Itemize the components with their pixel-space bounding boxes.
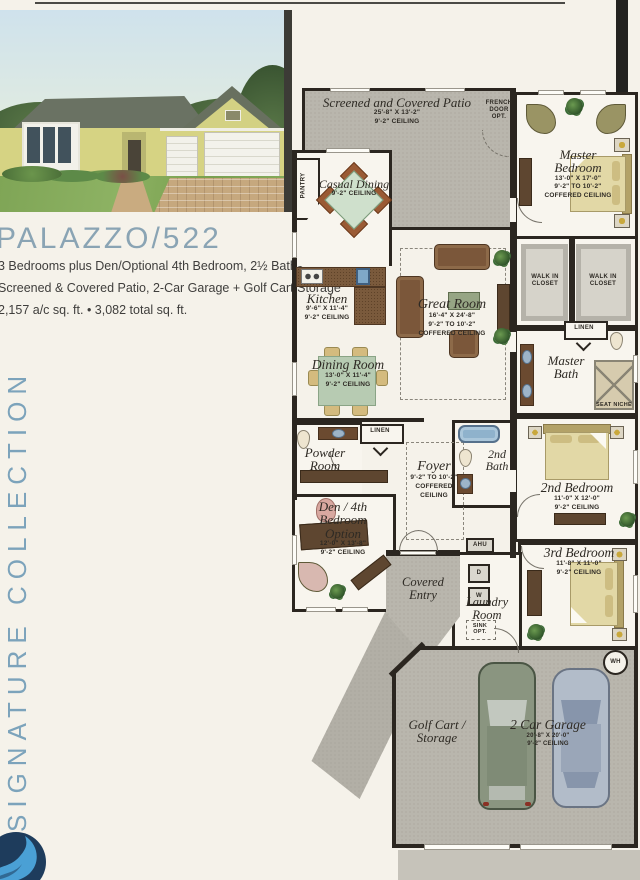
- second-bed: [545, 424, 607, 478]
- dryer-label: D: [477, 570, 482, 577]
- walk-in-closet-left: [521, 244, 568, 321]
- car-rear-window: [563, 772, 599, 788]
- window: [538, 90, 564, 95]
- desk: [299, 520, 369, 551]
- window: [342, 607, 368, 612]
- vanity-sink: [522, 384, 532, 398]
- media-console: [497, 284, 510, 334]
- wall: [292, 418, 424, 422]
- linen-closet: [360, 424, 404, 444]
- casual-dining-set: [322, 168, 384, 230]
- wall: [569, 239, 575, 325]
- bathtub: [458, 425, 500, 443]
- nightstand: [614, 138, 630, 152]
- potted-plant: [528, 624, 544, 640]
- coffee-table: [448, 292, 480, 310]
- dryer: D: [468, 564, 490, 583]
- front-door-opening: [400, 551, 436, 555]
- window: [306, 607, 336, 612]
- stove: [301, 269, 323, 284]
- master-bed: [570, 156, 632, 210]
- shower: [594, 360, 634, 410]
- vanity-sink: [460, 478, 471, 489]
- car-roof: [487, 726, 527, 786]
- loveseat: [396, 276, 424, 338]
- kitchen-label: Kitchen 9'-6" X 11'-4" 9'-2" CEILING: [296, 292, 358, 323]
- vanity-sink: [522, 350, 532, 364]
- dining-table: [318, 356, 376, 406]
- window: [633, 575, 638, 613]
- washer-label: W: [476, 593, 482, 600]
- bed-pillow: [605, 595, 613, 617]
- bookcase: [527, 570, 542, 616]
- nightstand: [610, 426, 624, 439]
- water-heater: WH: [603, 650, 628, 675]
- nightstand: [614, 214, 630, 228]
- vanity-sink: [332, 429, 345, 438]
- bed-pillow: [612, 185, 620, 205]
- casual-dining-table: [324, 170, 383, 229]
- patio-screen-opening: [330, 88, 370, 92]
- car-rear-window: [489, 786, 525, 800]
- window: [633, 450, 638, 484]
- door-swing: [399, 530, 419, 551]
- door-opening: [510, 198, 516, 222]
- garage-door-opening: [424, 844, 510, 850]
- kitchen-name: Kitchen: [296, 292, 358, 305]
- window: [292, 232, 297, 258]
- patio-screen-opening: [425, 88, 465, 92]
- door-opening: [510, 470, 516, 492]
- potted-plant: [494, 328, 510, 344]
- window: [292, 362, 297, 396]
- walk-in-closet-right: [576, 244, 631, 321]
- car-taillight: [525, 802, 531, 806]
- ahu-closet: AHU: [466, 538, 494, 553]
- water-heater-label: WH: [610, 659, 621, 666]
- third-bed: [570, 562, 624, 624]
- armchair: [449, 330, 479, 358]
- master-dresser: [519, 158, 532, 206]
- potted-plant: [620, 512, 635, 527]
- foyer-coffered-outline: [406, 442, 464, 540]
- floor-plan: Screened and Covered Patio 25'-8" X 13'-…: [0, 0, 640, 880]
- potted-plant: [566, 98, 583, 115]
- nightstand: [612, 628, 627, 641]
- window: [580, 90, 606, 95]
- car-windshield: [487, 700, 527, 726]
- potted-plant: [330, 584, 345, 599]
- dresser: [554, 513, 606, 525]
- potted-plant: [494, 250, 510, 266]
- nightstand: [612, 548, 627, 561]
- kitchen-sink: [356, 268, 370, 285]
- suv-car: [478, 662, 536, 810]
- sink-opt-box: [466, 620, 496, 640]
- kitchen-dims: 9'-6" X 11'-4": [296, 305, 358, 314]
- bed-pillow: [550, 435, 572, 443]
- sofa: [434, 244, 490, 270]
- car-windshield: [561, 700, 601, 724]
- ahu-label: AHU: [473, 542, 487, 549]
- car-roof: [561, 724, 601, 772]
- door-opening: [510, 332, 516, 352]
- linen-closet: [564, 321, 608, 340]
- bed-pillow: [605, 568, 613, 590]
- window: [292, 535, 297, 565]
- car-taillight: [483, 802, 489, 806]
- brochure-page: PALAZZO/522 3 Bedrooms plus Den/Optional…: [0, 0, 640, 880]
- washer: W: [468, 587, 490, 606]
- accent-chair: [316, 498, 336, 522]
- dining-chair: [376, 370, 388, 386]
- wall: [292, 150, 297, 500]
- kitchen-island: [354, 287, 386, 325]
- sedan-car: [552, 668, 610, 808]
- nightstand: [528, 426, 542, 439]
- console-table: [300, 470, 388, 483]
- garage-door-opening: [520, 844, 612, 850]
- driveway-apron: [398, 850, 640, 880]
- kitchen-ceiling: 9'-2" CEILING: [296, 314, 358, 323]
- sliding-door: [326, 148, 370, 153]
- bed-pillow: [612, 161, 620, 181]
